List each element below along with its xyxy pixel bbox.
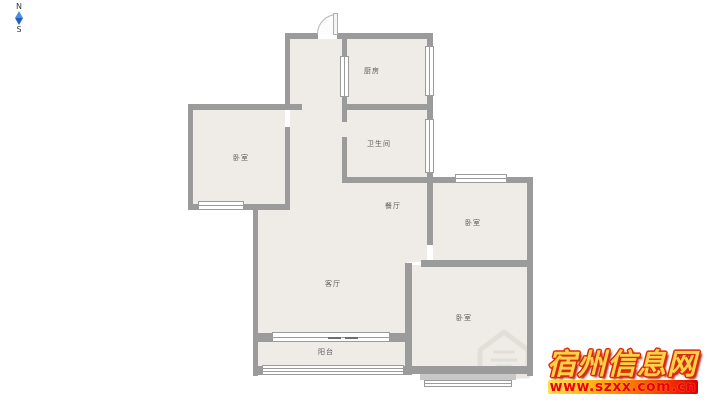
- room-label-living: 客厅: [325, 279, 341, 289]
- floor-living: [258, 206, 407, 335]
- room-label-bedroom-left: 卧室: [233, 153, 249, 163]
- room-label-bedroom-right: 卧室: [465, 218, 481, 228]
- entry-door-leaf-icon: [333, 13, 338, 35]
- compass: N S: [8, 2, 30, 34]
- wall-bedroom-bottom-south: [405, 366, 533, 374]
- site-url-watermark: www.szxx.com.cn: [548, 380, 698, 394]
- wall-dining-bedroom-divider: [427, 183, 433, 245]
- wall-bedroom-left-top: [188, 104, 302, 110]
- wall-top-right: [337, 33, 433, 39]
- wall-hall-left: [285, 33, 290, 107]
- sliding-door-balcony: [272, 332, 390, 342]
- wall-balcony-stub-right: [390, 333, 412, 342]
- room-label-dining: 餐厅: [385, 201, 401, 211]
- sliding-door-handle-icon: [345, 337, 358, 339]
- wall-bedroom-left-right: [285, 127, 290, 210]
- compass-north-label: N: [8, 2, 30, 11]
- window-bedroom-right: [455, 174, 507, 183]
- room-label-kitchen: 厨房: [364, 66, 380, 76]
- floor-hall-kitchen: [290, 39, 427, 107]
- wall-right-outer: [527, 177, 533, 376]
- sliding-door-kitchen: [340, 56, 349, 97]
- compass-needle-north-icon: [15, 11, 23, 18]
- sliding-door-handle-icon: [328, 337, 341, 339]
- wall-living-left: [253, 210, 258, 376]
- window-bedroom-left: [198, 201, 244, 210]
- wall-balcony-right: [405, 263, 412, 375]
- room-label-bathroom: 卫生间: [367, 139, 391, 149]
- window-kitchen: [425, 46, 434, 96]
- compass-needle-south-icon: [15, 18, 23, 25]
- wall-bathroom-left-lower: [342, 137, 347, 182]
- floor-plan-image: N S: [0, 0, 720, 405]
- room-label-bedroom-bottom: 卧室: [456, 313, 472, 323]
- compass-south-label: S: [8, 25, 30, 34]
- wall-bedrooms-divider: [421, 260, 533, 267]
- wall-kitchen-bottom: [342, 104, 433, 110]
- bay-window: [424, 380, 512, 387]
- site-name-watermark: 宿州信息网: [544, 347, 700, 381]
- room-label-balcony: 阳台: [318, 347, 334, 357]
- wall-balcony-stub-left: [253, 333, 272, 342]
- wall-left-outer: [188, 104, 193, 210]
- window-balcony: [262, 365, 404, 375]
- window-bathroom: [425, 119, 434, 173]
- wall-bathroom-left-upper: [342, 104, 347, 122]
- floor-bathroom-corridor: [290, 103, 427, 179]
